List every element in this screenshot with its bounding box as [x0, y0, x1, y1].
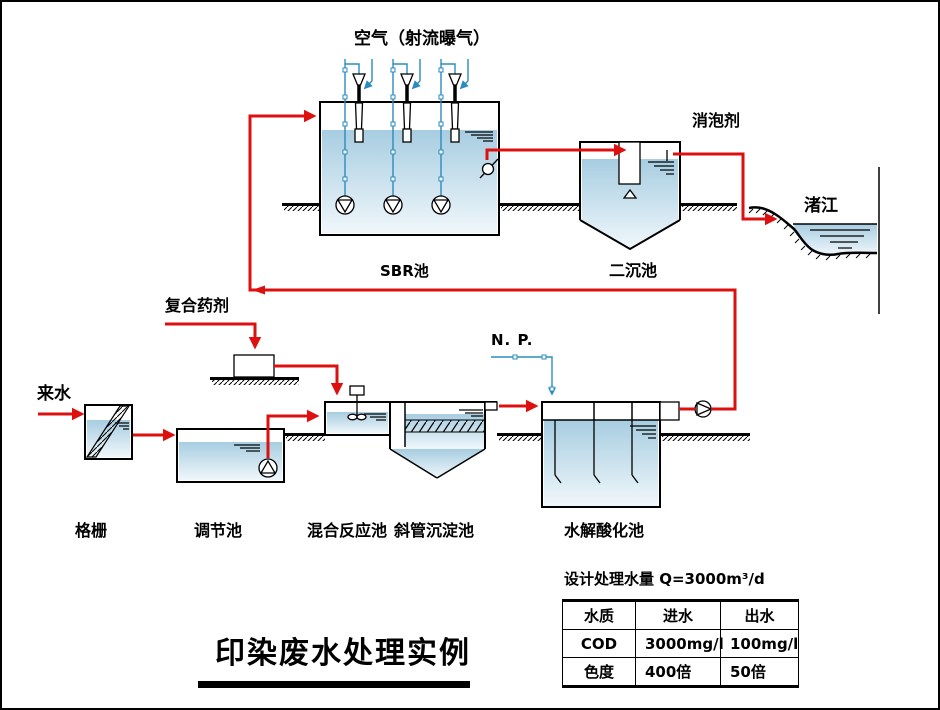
- influent-label: 来水: [37, 386, 71, 403]
- cod-label: COD: [563, 630, 636, 658]
- nutrient-label: N. P.: [491, 333, 533, 348]
- cod-influent-value: 3000mg/l: [636, 630, 721, 658]
- drawing-sheet: 空气（射流曝气） 消泡剂 渚江 SBR池 二沉池 复合药剂 来水 N. P. 格…: [0, 0, 940, 710]
- bar-screen-label: 格栅: [75, 523, 107, 539]
- chroma-influent-value: 400倍: [636, 658, 721, 687]
- secondary-clarifier: [580, 142, 680, 249]
- chroma-label: 色度: [563, 658, 636, 687]
- col-influent: 进水: [636, 601, 721, 630]
- transfer-pump: [695, 401, 711, 417]
- col-effluent: 出水: [721, 601, 799, 630]
- mixing-reaction-tank: [325, 386, 390, 435]
- air-label: 空气（射流曝气）: [354, 31, 490, 48]
- sbr-tank-label: SBR池: [380, 264, 429, 279]
- hydrolysis-acidification-tank-label: 水解酸化池: [564, 523, 644, 539]
- table-row: COD 3000mg/l 100mg/l: [563, 630, 799, 658]
- secondary-clarifier-label: 二沉池: [609, 263, 657, 279]
- cod-effluent-value: 100mg/l: [721, 630, 799, 658]
- hydrolysis-acidification-tank: [542, 402, 679, 507]
- mixing-reaction-tank-label: 混合反应池: [307, 523, 387, 539]
- process-flow-diagram: [2, 2, 940, 710]
- table-row: 色度 400倍 50倍: [563, 658, 799, 687]
- chroma-effluent-value: 50倍: [721, 658, 799, 687]
- design-capacity-note: 设计处理水量 Q=3000m³/d: [564, 572, 765, 587]
- bar-screen-tank: [85, 405, 132, 459]
- page-title: 印染废水处理实例: [215, 639, 471, 669]
- chemical-dosing-box: [234, 355, 274, 377]
- inclined-tube-clarifier-label: 斜管沉淀池: [394, 523, 474, 539]
- col-quality: 水质: [563, 601, 636, 630]
- river-label: 渚江: [804, 198, 838, 215]
- equalization-tank-label: 调节池: [194, 523, 242, 539]
- river: [749, 167, 879, 314]
- water-quality-table: 水质 进水 出水 COD 3000mg/l 100mg/l 色度 400倍 50…: [562, 599, 799, 688]
- nutrient-dosing-line: [491, 355, 554, 394]
- compound-chemical-label: 复合药剂: [165, 298, 229, 314]
- defoamer-label: 消泡剂: [692, 113, 740, 129]
- title-underline: [198, 681, 470, 688]
- table-header-row: 水质 进水 出水: [563, 601, 799, 630]
